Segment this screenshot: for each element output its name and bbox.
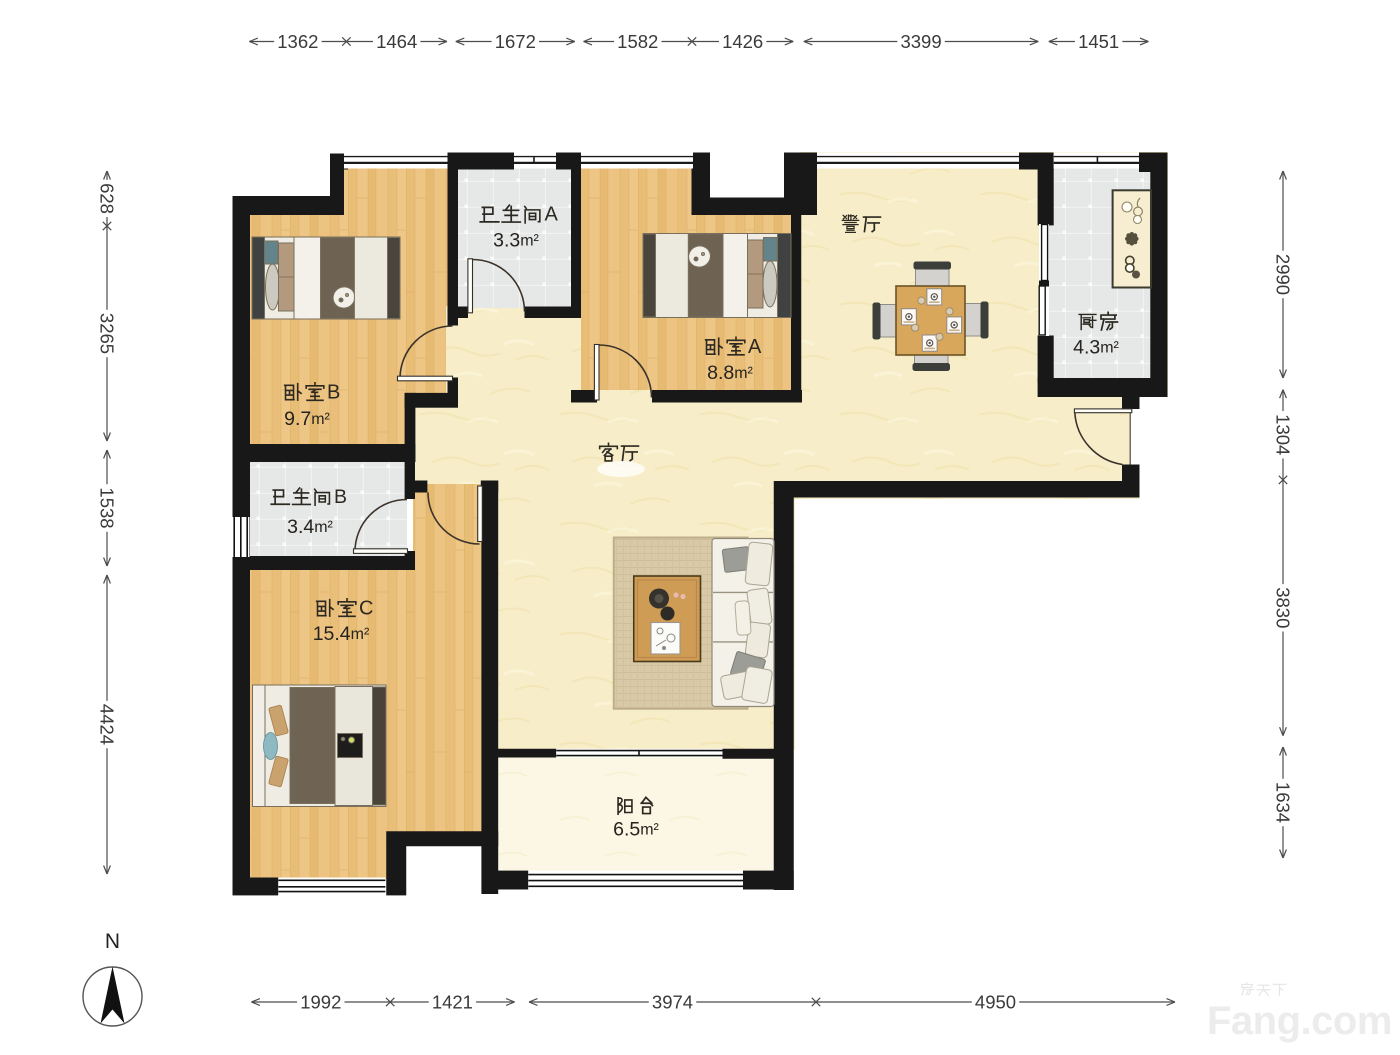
svg-text:1634: 1634 [1273,782,1294,823]
svg-text:1304: 1304 [1273,414,1294,455]
svg-text:1362: 1362 [277,31,318,52]
svg-text:A: A [545,204,559,226]
svg-text:4424: 4424 [97,704,118,745]
svg-text:B: B [334,486,347,508]
svg-text:6.5m²: 6.5m² [613,819,659,841]
svg-text:C: C [359,598,373,620]
svg-text:4.3m²: 4.3m² [1073,337,1119,359]
svg-text:Fang.com: Fang.com [1207,999,1392,1043]
svg-text:3.3m²: 3.3m² [493,230,539,252]
svg-text:A: A [748,336,762,358]
svg-text:3974: 3974 [652,992,693,1013]
svg-text:1464: 1464 [376,31,417,52]
svg-text:2990: 2990 [1273,254,1294,295]
svg-text:3399: 3399 [900,31,941,52]
svg-text:3265: 3265 [97,313,118,354]
svg-text:1451: 1451 [1078,31,1119,52]
svg-text:B: B [327,382,340,404]
svg-text:8.8m²: 8.8m² [707,362,753,384]
svg-text:15.4m²: 15.4m² [313,623,370,645]
svg-text:1992: 1992 [300,992,341,1013]
svg-text:1421: 1421 [432,992,473,1013]
svg-text:N: N [105,930,120,953]
svg-text:1582: 1582 [617,31,658,52]
svg-text:1672: 1672 [495,31,536,52]
svg-text:9.7m²: 9.7m² [284,408,330,430]
svg-text:3.4m²: 3.4m² [287,516,333,538]
svg-text:628: 628 [97,183,118,214]
svg-text:1426: 1426 [722,31,763,52]
svg-text:1538: 1538 [97,487,118,528]
svg-text:4950: 4950 [975,992,1016,1013]
svg-text:3830: 3830 [1273,587,1294,628]
